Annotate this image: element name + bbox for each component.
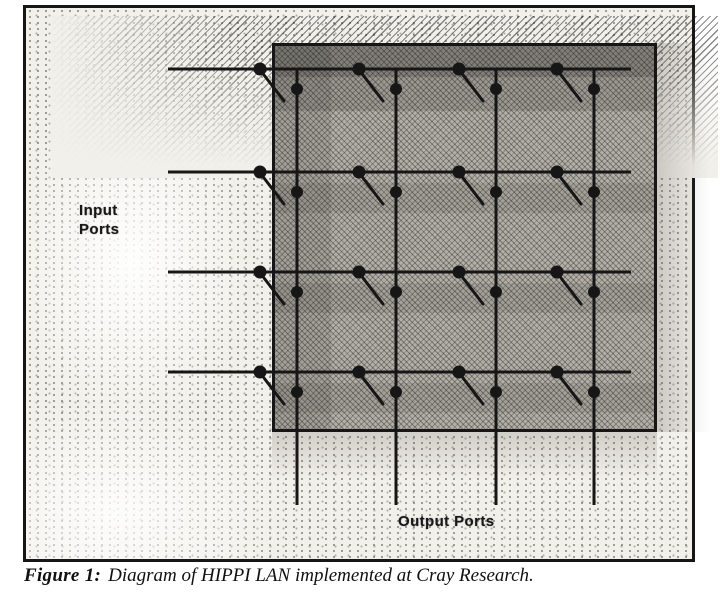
crosspoint-output-dot [291, 83, 303, 95]
crosspoint-output-dot [588, 83, 600, 95]
crosspoint-blade-icon [463, 178, 483, 204]
crosspoint-input-dot [254, 63, 267, 76]
crosspoint-blade-icon [264, 178, 284, 204]
crosspoint-output-dot [291, 186, 303, 198]
crosspoint-input-dot [453, 366, 466, 379]
crosspoint-blade-icon [561, 178, 581, 204]
figure-caption: Figure 1:Diagram of HIPPI LAN implemente… [24, 565, 714, 587]
crosspoint-input-dot [353, 63, 366, 76]
crosspoint-output-dot [390, 386, 402, 398]
crosspoint-input-dot [551, 366, 564, 379]
crosspoint-blade-icon [561, 75, 581, 101]
crosspoint-input-dot [453, 63, 466, 76]
crosspoint-output-dot [390, 186, 402, 198]
crosspoint-blade-icon [463, 278, 483, 304]
crosspoint-output-dot [490, 386, 502, 398]
crosspoint-blade-icon [264, 75, 284, 101]
crosspoint-blade-icon [363, 75, 383, 101]
crosspoint-blade-icon [363, 278, 383, 304]
caption-figure-number: Figure 1: [24, 565, 101, 586]
crosspoint-output-dot [390, 286, 402, 298]
input-ports-label-line2: Ports [79, 220, 119, 239]
input-ports-label-line1: Input [79, 201, 119, 220]
crosspoint-input-dot [551, 63, 564, 76]
output-ports-label: Output Ports [398, 512, 494, 531]
crosspoint-blade-icon [561, 278, 581, 304]
crosspoint-blade-icon [363, 378, 383, 404]
crosspoint-input-dot [551, 166, 564, 179]
crosspoint-output-dot [490, 286, 502, 298]
crosspoint-output-dot [490, 186, 502, 198]
crosspoint-output-dot [390, 83, 402, 95]
crosspoint-output-dot [291, 286, 303, 298]
crosspoint-blade-icon [363, 178, 383, 204]
crosspoint-input-dot [254, 266, 267, 279]
crossbar-grid [0, 0, 720, 597]
input-ports-label: Input Ports [79, 201, 119, 239]
crosspoint-input-dot [353, 266, 366, 279]
crosspoint-input-dot [353, 366, 366, 379]
crosspoint-output-dot [291, 386, 303, 398]
crosspoint-output-dot [588, 386, 600, 398]
crosspoint-input-dot [254, 166, 267, 179]
crosspoint-input-dot [353, 166, 366, 179]
crosspoint-blade-icon [463, 378, 483, 404]
crosspoint-blade-icon [264, 278, 284, 304]
crosspoint-input-dot [254, 366, 267, 379]
crosspoint-blade-icon [561, 378, 581, 404]
crosspoint-input-dot [453, 166, 466, 179]
crosspoint-output-dot [490, 83, 502, 95]
crosspoint-blade-icon [264, 378, 284, 404]
crosspoint-output-dot [588, 186, 600, 198]
caption-text: Diagram of HIPPI LAN implemented at Cray… [108, 565, 534, 586]
crosspoint-blade-icon [463, 75, 483, 101]
crosspoint-input-dot [551, 266, 564, 279]
crosspoint-output-dot [588, 286, 600, 298]
crosspoint-input-dot [453, 266, 466, 279]
scanned-figure-page: Input Ports Output Ports Figure 1:Diagra… [0, 0, 720, 597]
